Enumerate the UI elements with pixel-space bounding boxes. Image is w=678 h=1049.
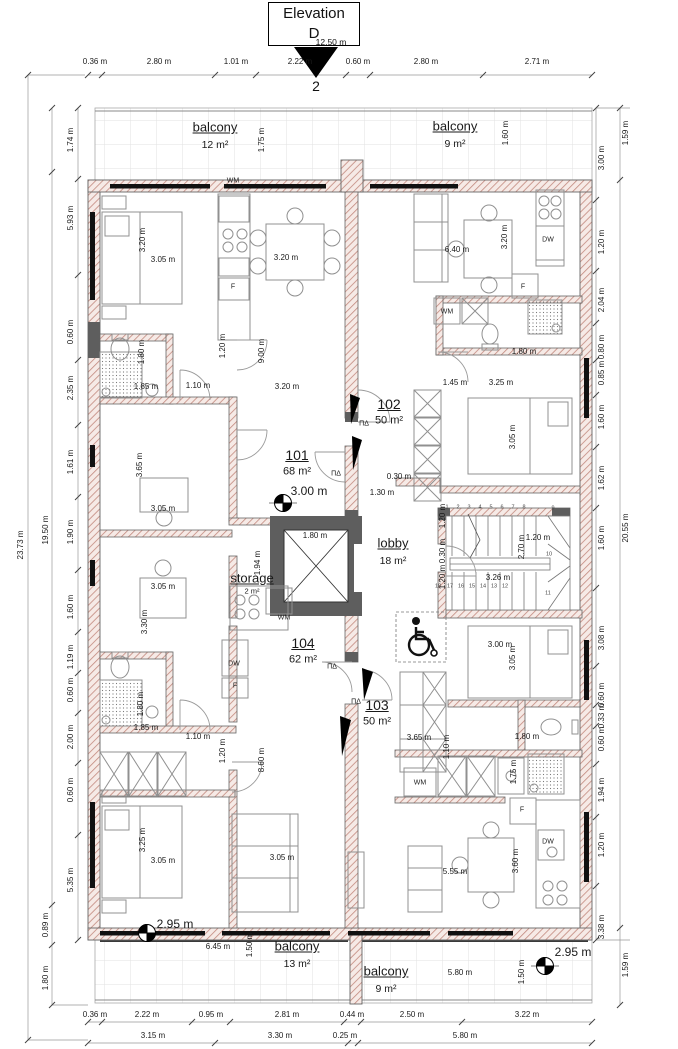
overall-span-dimension: 12.50 m bbox=[316, 37, 347, 47]
elevation-marker-number: 2 bbox=[312, 78, 320, 94]
wheelchair-icon bbox=[396, 612, 446, 662]
elevation-marker-arrow-icon bbox=[294, 47, 338, 78]
staircase bbox=[446, 514, 570, 610]
elevator-shaft bbox=[270, 516, 362, 616]
floor-plan-drawing bbox=[0, 0, 678, 1049]
floor-plan: Elevation D 12.50 m 2 0.36 m2.80 m1.01 m… bbox=[0, 0, 678, 1049]
elevation-marker-title: Elevation bbox=[269, 4, 359, 24]
